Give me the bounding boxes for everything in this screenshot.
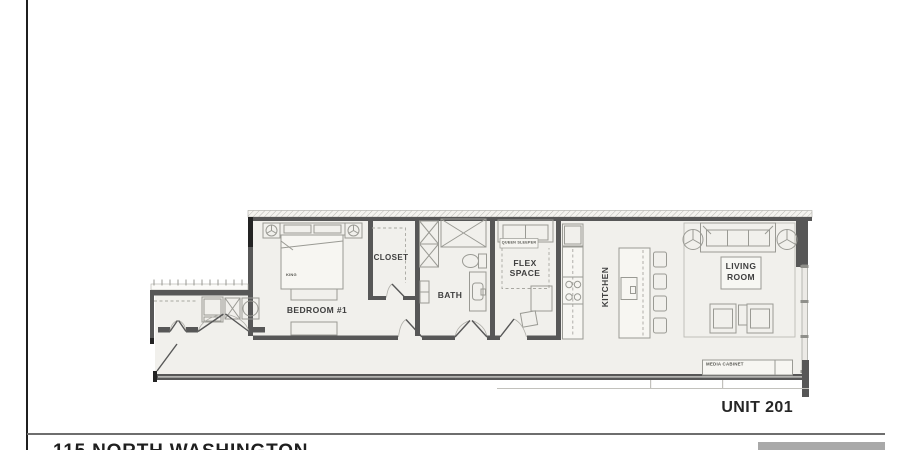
king-bed-label: KING (286, 273, 297, 277)
flex-label-line1: FLEX (513, 258, 536, 268)
bedroom-label: BEDROOM #1 (272, 306, 362, 316)
closet-label: CLOSET (368, 254, 414, 263)
bath-label: BATH (428, 291, 472, 301)
media-cabinet-label: MEDIA CABINET (706, 362, 744, 367)
flex-label-line2: SPACE (510, 268, 541, 278)
project-address-title: 115 NORTH WASHINGTON (53, 441, 308, 450)
floor-plan-sheet: BEDROOM #1 CLOSET BATH FLEX SPACE KITCHE… (0, 0, 900, 450)
kitchen-label: KITCHEN (601, 265, 611, 309)
flex-space-label: FLEX SPACE (498, 259, 552, 278)
living-label-line2: ROOM (727, 272, 755, 282)
footer-gray-bar (758, 442, 885, 450)
living-label-line1: LIVING (726, 261, 757, 271)
unit-number-title: UNIT 201 (693, 399, 793, 417)
living-room-label: LIVING ROOM (721, 261, 761, 282)
queen-sleeper-label: QUEEN SLEEPER (500, 238, 538, 248)
floor-plan-drawing (0, 0, 900, 450)
footer-rule (27, 433, 885, 435)
